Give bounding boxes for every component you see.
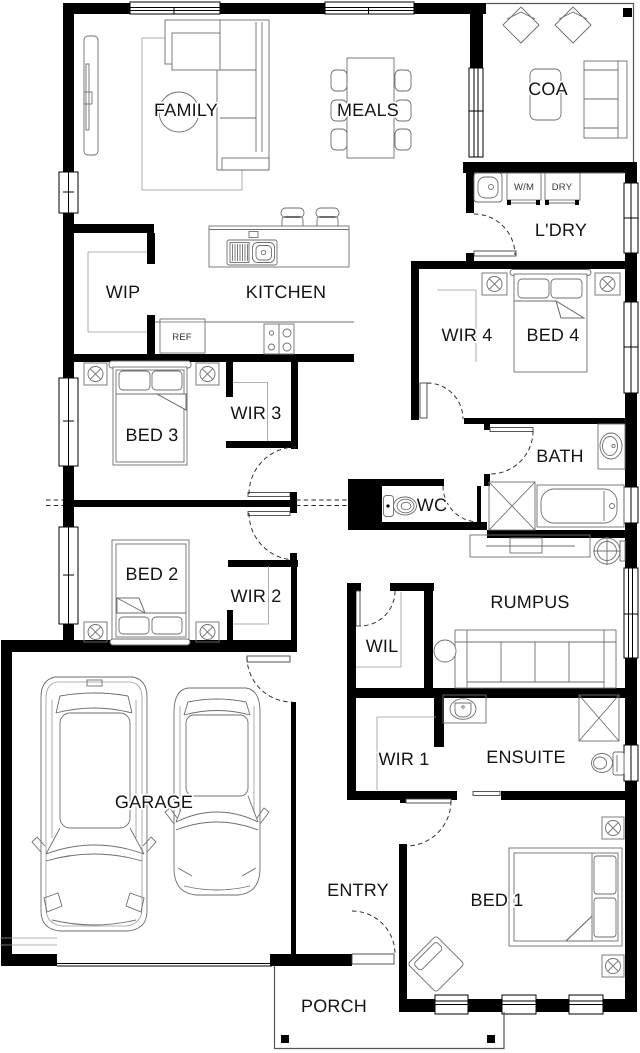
svg-text:BED 1: BED 1: [470, 890, 523, 910]
svg-text:PORCH: PORCH: [301, 996, 367, 1016]
svg-text:GARAGE: GARAGE: [115, 792, 193, 812]
svg-text:WIP: WIP: [106, 282, 141, 302]
svg-text:BED 4: BED 4: [526, 325, 579, 345]
svg-text:COA: COA: [528, 79, 568, 99]
svg-text:RUMPUS: RUMPUS: [490, 592, 569, 612]
svg-text:WC: WC: [417, 495, 447, 515]
svg-text:L'DRY: L'DRY: [535, 220, 587, 240]
svg-text:KITCHEN: KITCHEN: [246, 282, 326, 302]
svg-text:FAMILY: FAMILY: [154, 100, 218, 120]
svg-text:BED 2: BED 2: [125, 564, 178, 584]
svg-text:ENSUITE: ENSUITE: [486, 747, 565, 767]
svg-text:REF: REF: [172, 332, 192, 343]
svg-text:WIR 2: WIR 2: [230, 586, 281, 606]
svg-text:BATH: BATH: [536, 446, 583, 466]
svg-text:WIR 4: WIR 4: [441, 325, 492, 345]
svg-text:ENTRY: ENTRY: [327, 880, 389, 900]
svg-text:BED 3: BED 3: [125, 425, 178, 445]
svg-text:WIR 1: WIR 1: [378, 749, 429, 769]
svg-text:WIL: WIL: [366, 636, 399, 656]
svg-text:MEALS: MEALS: [337, 100, 399, 120]
svg-text:W/M: W/M: [514, 182, 534, 193]
svg-text:WIR 3: WIR 3: [230, 403, 281, 423]
svg-text:DRY: DRY: [552, 182, 573, 193]
